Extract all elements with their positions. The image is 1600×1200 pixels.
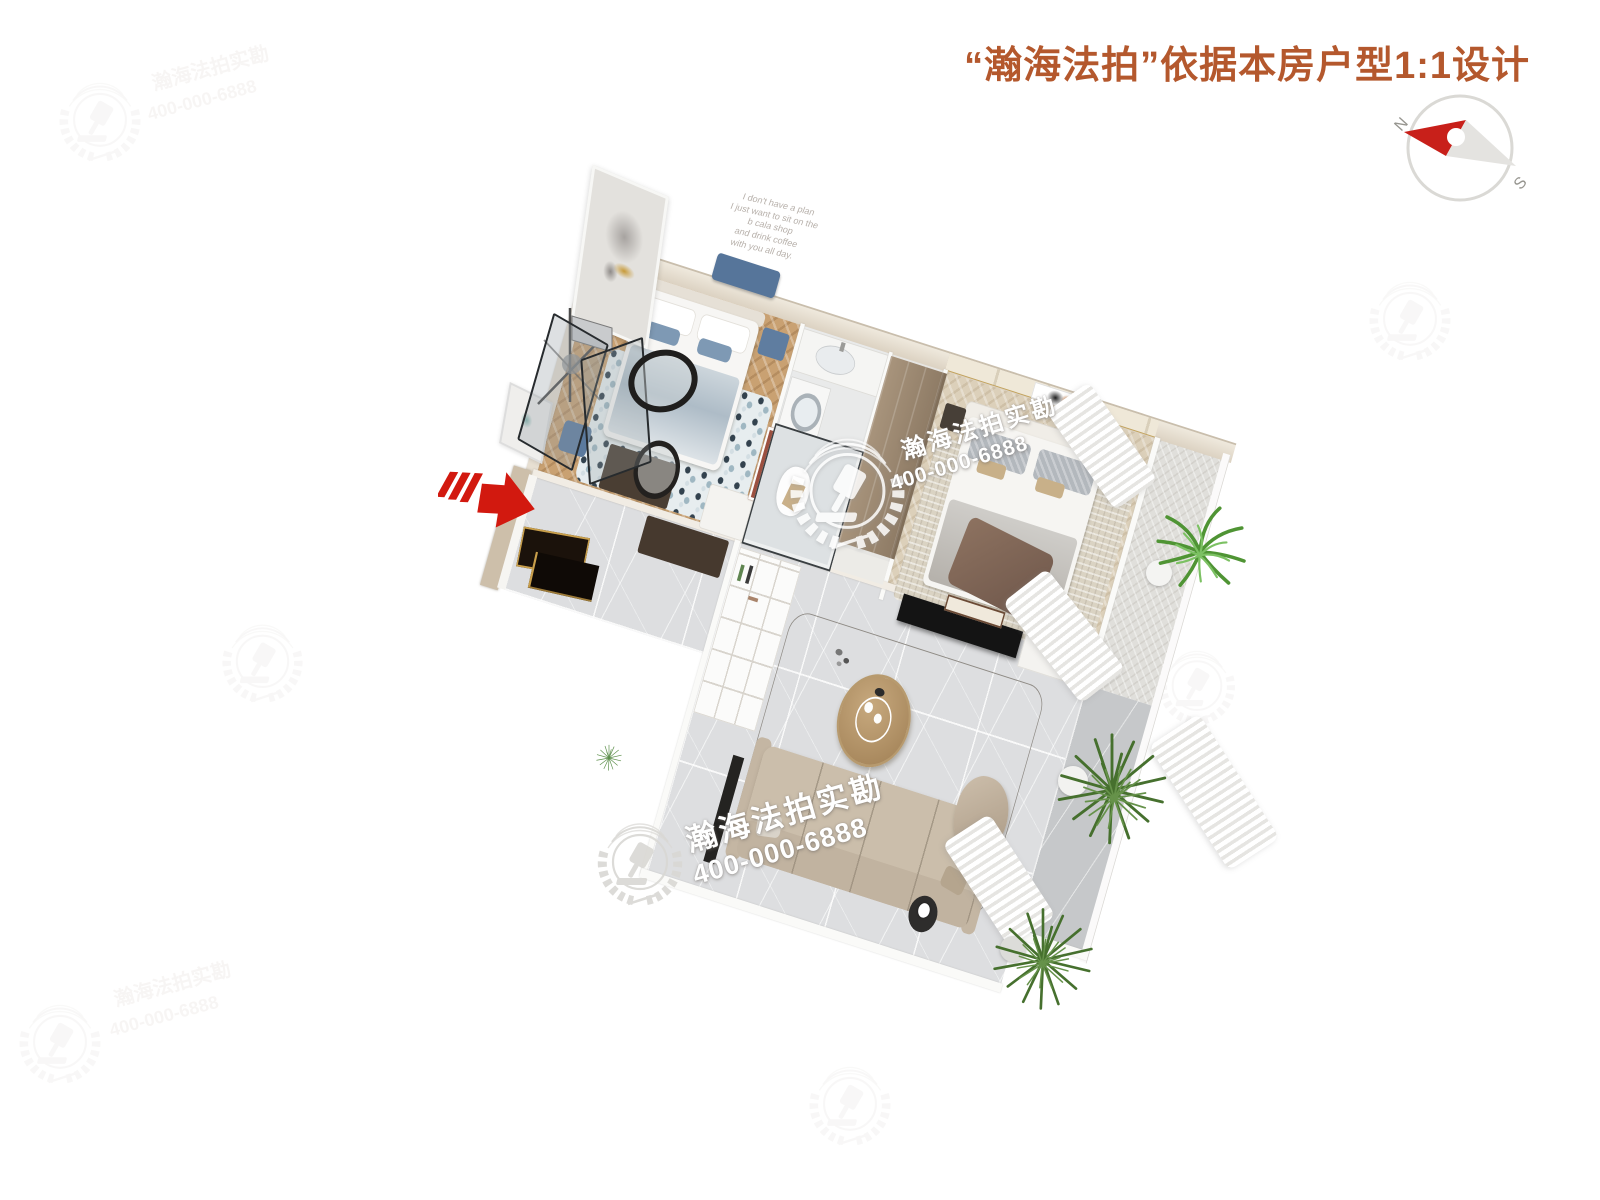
palm-plant [1145, 495, 1255, 605]
floorplan-poster: { "header": { "title": "“瀚海法拍”依据本房户型1:1设… [0, 0, 1600, 1200]
compass-icon: N S [1388, 86, 1538, 216]
entrance-arrow-icon [438, 462, 548, 542]
watermark-logo-icon [12, 990, 108, 1086]
bedroom-wall-quote: I don't have a plan I just want to sit o… [691, 184, 849, 271]
watermark-logo-icon [590, 808, 690, 908]
watermark-logo-icon [215, 610, 310, 705]
shelf-plant [595, 744, 623, 772]
spiky-plant [1052, 730, 1172, 850]
watermark-logo-icon [1362, 267, 1458, 363]
watermark-logo-icon [802, 1052, 898, 1148]
compass-south-label: S [1511, 174, 1531, 193]
spiky-plant [988, 905, 1098, 1015]
page-title: “瀚海法拍”依据本房户型1:1设计 [964, 34, 1530, 89]
watermark-logo-icon [52, 68, 148, 164]
